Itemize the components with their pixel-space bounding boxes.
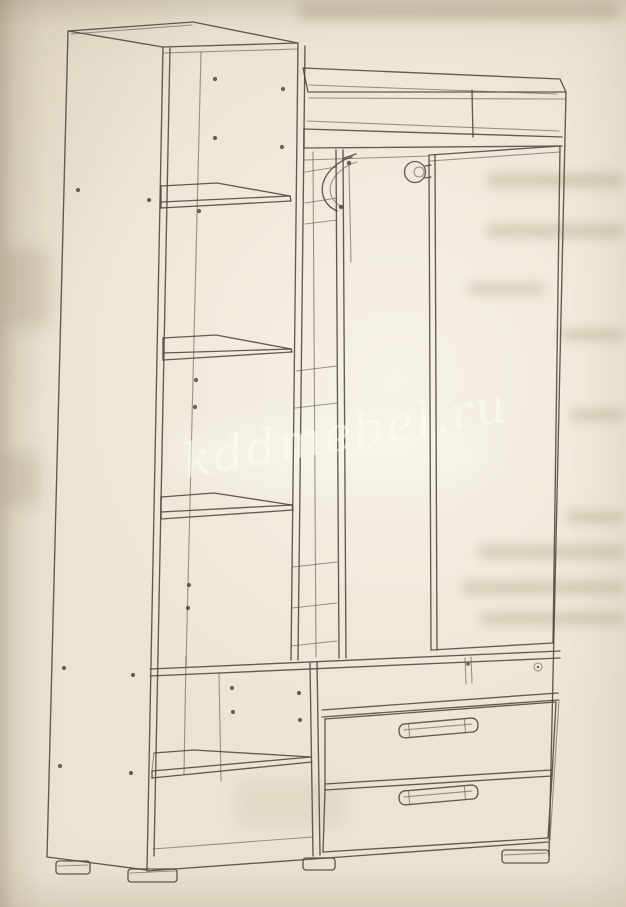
drawer-1: [325, 702, 556, 790]
tower-shelf-1: [161, 183, 291, 208]
niche-divider: [472, 90, 473, 137]
drawer-2-handle: [399, 785, 479, 806]
drawer-1-handle: [399, 718, 479, 739]
drawer-2: [323, 776, 552, 852]
cam-lock-mark: [534, 663, 542, 671]
feet: [56, 850, 549, 882]
right-side-panel: [549, 92, 566, 856]
base-section: [56, 651, 560, 882]
foot-back-left: [56, 861, 90, 874]
coat-hook: [322, 154, 357, 211]
top-bridge: [303, 68, 566, 160]
tower-shelf-3: [161, 493, 293, 519]
tower-shelf-2: [163, 335, 292, 360]
scanned-page: kddmebel.ru: [0, 0, 626, 907]
furniture-line-drawing: kddmebel.ru: [0, 0, 626, 907]
foot-right: [502, 850, 549, 863]
hanging-rail-mount: [405, 162, 432, 183]
base-shelf: [152, 750, 312, 778]
